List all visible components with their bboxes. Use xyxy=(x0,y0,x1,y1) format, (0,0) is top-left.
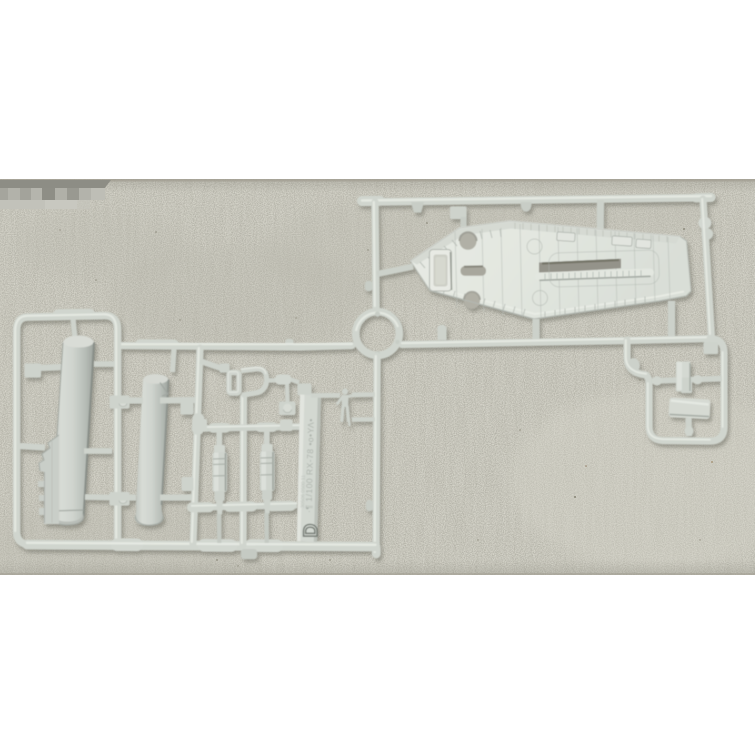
svg-text:D: D xyxy=(301,524,322,538)
svg-text:30506 0500 11: 30506 0500 11 xyxy=(300,475,307,508)
